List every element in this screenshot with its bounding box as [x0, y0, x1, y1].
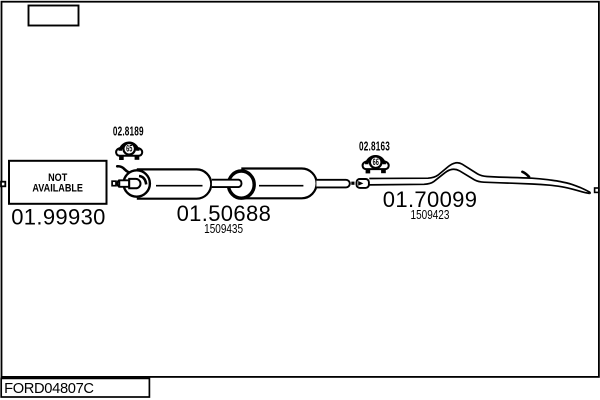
svg-text:1509435: 1509435	[204, 223, 243, 236]
svg-text:FORD04807C: FORD04807C	[4, 381, 94, 397]
svg-text:65: 65	[126, 143, 132, 154]
svg-text:02.8163: 02.8163	[359, 140, 390, 154]
svg-text:01.99930: 01.99930	[11, 204, 106, 229]
svg-text:AVAILABLE: AVAILABLE	[32, 183, 83, 195]
svg-text:01.50688: 01.50688	[177, 201, 272, 226]
svg-text:1509423: 1509423	[411, 209, 450, 222]
svg-text:66: 66	[373, 157, 379, 168]
svg-text:02.8189: 02.8189	[113, 125, 144, 139]
